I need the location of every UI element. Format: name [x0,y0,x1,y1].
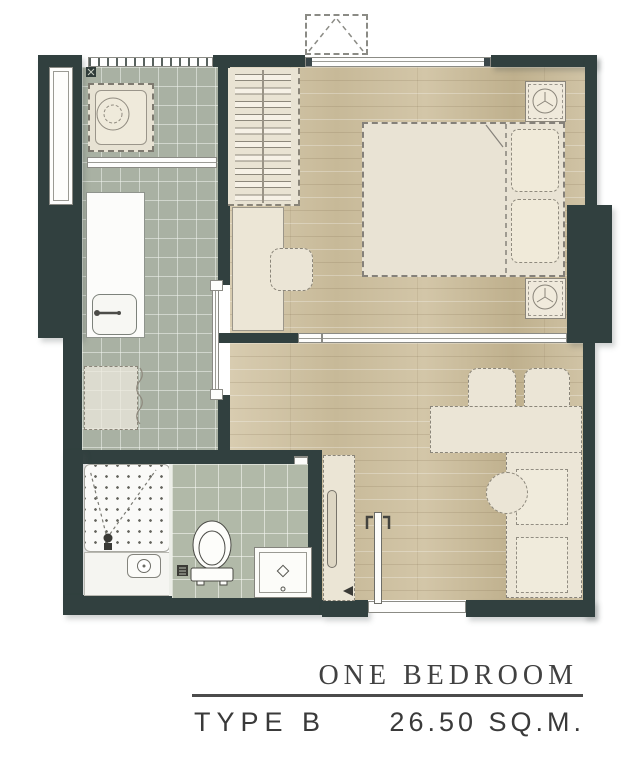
dining-table [430,406,582,453]
washing-machine [88,83,154,152]
nightstand-bottom [525,278,566,319]
window-bedroom [305,57,491,67]
entry-threshold [368,601,466,613]
wall-left-lower [63,338,82,455]
air-conditioner-outdoor-unit [305,14,368,55]
wall-bottom-right [466,600,595,617]
kitchen-sink [92,294,137,335]
wall-partition-bedroom-living [218,333,298,343]
floor-drain [177,565,188,576]
wall-right-lower [583,343,595,617]
wall-bathroom-top [63,450,322,464]
pillow [511,129,559,192]
pillow [511,199,559,263]
window-left-shaft [49,67,73,205]
coffee-table [486,472,528,514]
wardrobe [228,68,300,206]
footer-divider-line [192,694,583,697]
wall-top-right [491,55,597,67]
floor-drain-box [127,554,161,578]
wall-bottom-left [63,595,322,615]
hanger-rail-icon [235,71,291,201]
refrigerator [84,366,138,430]
sliding-door-kitchen [212,283,219,397]
sliding-door-laundry [87,157,217,168]
tv-icon [327,490,337,568]
unit-area-label: 26.50 SQ.M. [389,707,585,738]
wall-right-shaft-block [567,205,612,343]
floor-plan-canvas: ONE BEDROOM TYPE B 26.50 SQ.M. [0,0,640,761]
entry-door [374,512,382,604]
plan-title: ONE BEDROOM [318,660,578,692]
nightstand-top [525,81,566,122]
sliding-door-bedroom-living [298,333,567,343]
shower-area [84,464,170,552]
unit-type-label: TYPE B [194,707,326,738]
wall-bathroom-left [63,450,83,600]
stool [270,248,313,291]
wall-kitchen-lower [218,395,230,455]
wall-bottom-middle [322,600,368,617]
wall-right-upper [585,55,597,207]
shower-partition-line [169,464,172,596]
sofa-cushion [516,537,568,593]
vanity-basin [254,547,312,598]
window-louver-laundry [88,57,213,67]
